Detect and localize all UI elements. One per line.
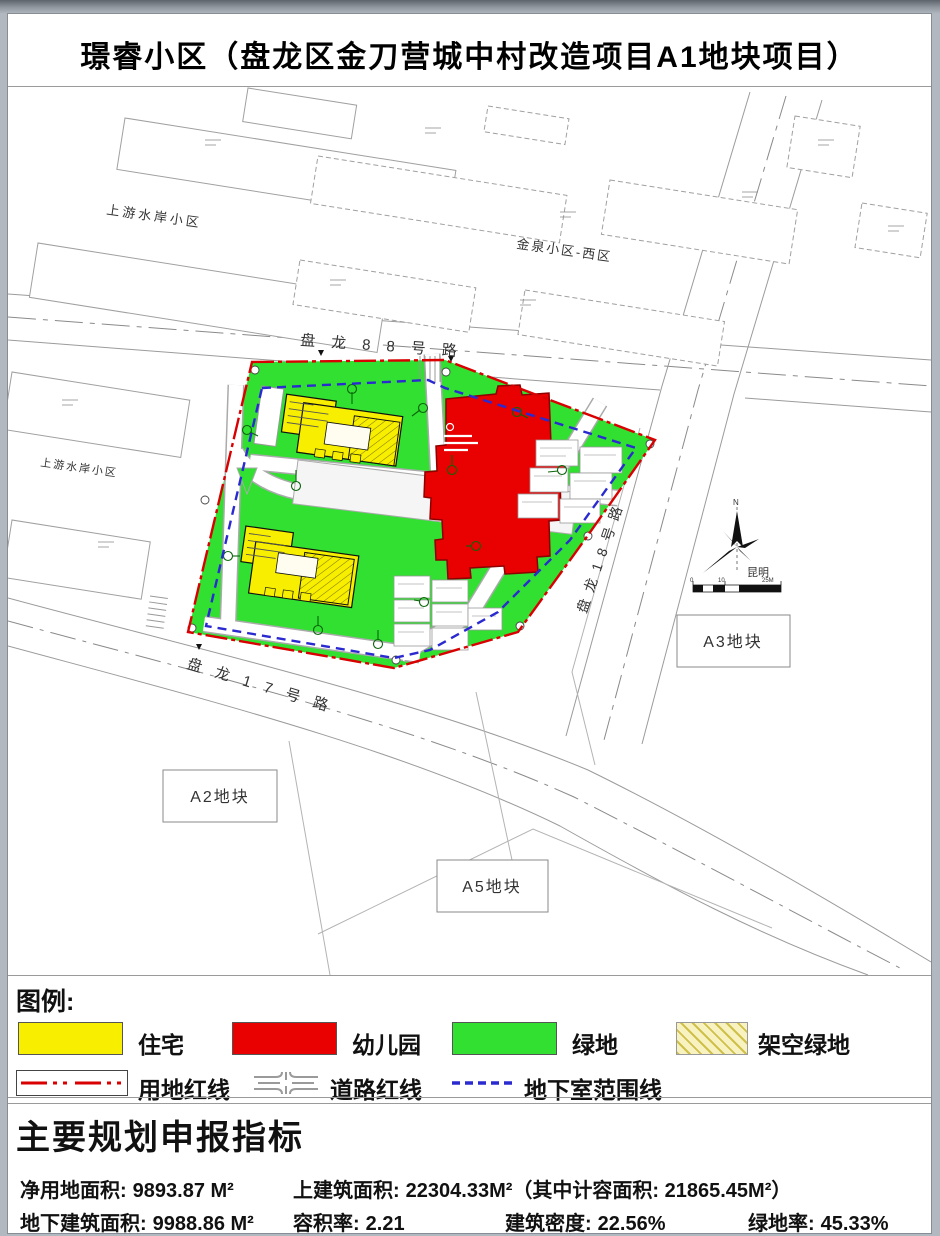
legend-label-residential: 住宅 xyxy=(138,1026,184,1060)
scale-tick-25: 25M xyxy=(762,578,774,584)
indicator-above-ground-label: 上建筑面积: xyxy=(293,1180,400,1202)
indicators-title: 主要规划申报指标 xyxy=(16,1110,304,1159)
plot-a5: A5地块 xyxy=(437,860,548,912)
neighborhood-label-jinquan: 金泉小区-西区 xyxy=(516,236,613,264)
neighborhood-buildings-dashed xyxy=(293,106,927,366)
indicator-net-land-value: 9893.87 M² xyxy=(133,1180,234,1202)
legend-label-kindergarten: 幼儿园 xyxy=(352,1026,421,1060)
plan-sheet-page: 璟睿小区（盘龙区金刀营城中村改造项目A1地块项目） xyxy=(0,0,940,1236)
indicator-far-label: 容积率: xyxy=(293,1213,360,1235)
indicator-density: 建筑密度:22.56% xyxy=(505,1207,666,1236)
scale-tick-0: 0 xyxy=(690,578,694,584)
plot-a2: A2地块 xyxy=(163,770,277,822)
indicator-green-rate-value: 45.33% xyxy=(821,1213,889,1235)
indicator-above-ground: 上建筑面积:22304.33M²（其中计容面积: 21865.45M²） xyxy=(293,1174,791,1203)
legend-indicator-separator-2 xyxy=(8,1103,931,1104)
indicator-underground-label: 地下建筑面积: xyxy=(20,1213,147,1235)
indicator-green-rate-label: 绿地率: xyxy=(748,1213,815,1235)
indicator-underground: 地下建筑面积:9988.86 M² xyxy=(20,1207,254,1236)
plot-a3: A3地块 xyxy=(677,615,790,667)
legend-label-red-line: 用地红线 xyxy=(138,1071,230,1105)
map-legend-separator xyxy=(8,975,931,976)
legend-swatch-elevated-green xyxy=(676,1022,748,1055)
legend-swatch-kindergarten xyxy=(232,1022,337,1055)
indicator-above-ground-value: 22304.33M²（其中计容面积: 21865.45M²） xyxy=(406,1180,792,1202)
scale-bar: 0 10 25M xyxy=(690,578,781,592)
page-title: 璟睿小区（盘龙区金刀营城中村改造项目A1地块项目） xyxy=(8,32,931,76)
indicator-density-value: 22.56% xyxy=(598,1213,666,1235)
road-panlong-17 xyxy=(8,598,931,975)
legend-label-basement-line: 地下室范围线 xyxy=(524,1071,662,1105)
legend-indicator-separator-1 xyxy=(8,1097,931,1098)
indicator-far: 容积率:2.21 xyxy=(293,1207,405,1236)
compass-north-label: N xyxy=(733,498,739,507)
legend-label-road-line: 道路红线 xyxy=(330,1071,422,1105)
indicator-net-land-label: 净用地面积: xyxy=(20,1180,127,1202)
neighborhood-label-upstream-top: 上游水岸小区 xyxy=(106,202,203,230)
legend-sample-basement-line xyxy=(450,1070,518,1096)
road-label-17: 盘龙17号路 xyxy=(185,655,344,719)
legend-label-elevated-green: 架空绿地 xyxy=(758,1026,850,1060)
indicator-green-rate: 绿地率:45.33% xyxy=(748,1207,889,1236)
plot-a3-label: A3地块 xyxy=(703,633,763,651)
legend-sample-road-line xyxy=(252,1070,320,1096)
legend-title: 图例: xyxy=(16,982,74,1018)
legend-label-green: 绿地 xyxy=(572,1026,618,1060)
compass: N 昆明 xyxy=(703,498,769,579)
site-plan-map: 盘龙88号路 盘龙17号路 盘龙18号路 上游水岸小区 上游水岸小区 金泉小区-… xyxy=(8,86,931,975)
legend-sample-red-line xyxy=(16,1070,128,1096)
plot-a5-label: A5地块 xyxy=(462,878,522,896)
road-label-88: 盘龙88号路 xyxy=(300,331,474,361)
legend-swatch-residential xyxy=(18,1022,123,1055)
road-crossing-icon xyxy=(252,1070,320,1096)
indicator-density-label: 建筑密度: xyxy=(505,1213,592,1235)
indicator-far-value: 2.21 xyxy=(366,1213,405,1235)
scale-tick-10: 10 xyxy=(718,578,725,584)
indicator-underground-value: 9988.86 M² xyxy=(153,1213,254,1235)
legend-swatch-green xyxy=(452,1022,557,1055)
plot-a2-label: A2地块 xyxy=(190,788,250,806)
neighborhood-label-upstream-left: 上游水岸小区 xyxy=(40,456,119,480)
indicator-net-land: 净用地面积:9893.87 M² xyxy=(20,1174,234,1203)
